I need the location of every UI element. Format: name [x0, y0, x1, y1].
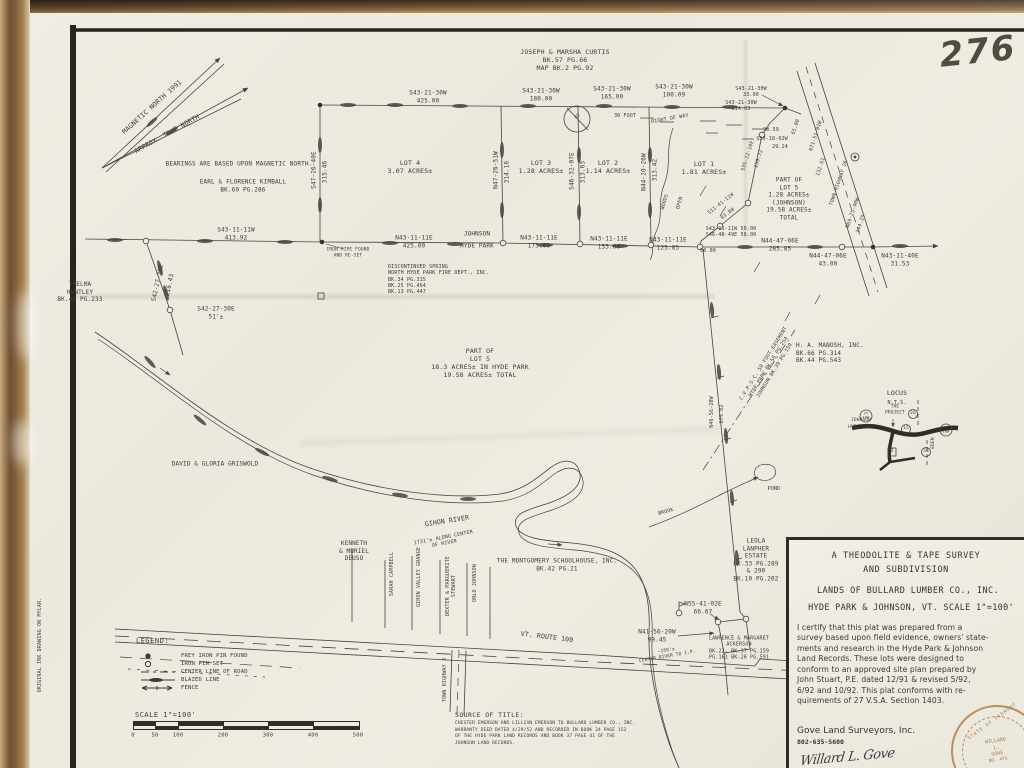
source-of-title-body: CHESTER EMERSON AND LILLIAN EMERSON TO B… [455, 721, 635, 747]
town-line-label-hyde-park: HYDE PARK [460, 242, 494, 250]
bearing-label: N55-41-02E 66.67 [684, 601, 722, 616]
owner-label-grange: GIHON VALLEY GRANGE [416, 547, 422, 607]
bearing-label: S43-21-30W 425.00 [409, 90, 447, 105]
bearing-label: S43-11-11W 50.00 S46-48-49E 50.00 [706, 226, 757, 239]
lot-label-2: LOT 2 1.14 ACRES± [586, 159, 631, 175]
firm-name: Gove Land Surveyors, Inc. [797, 726, 915, 736]
bearing-label: S47-26-40E [310, 151, 318, 189]
owner-label-manosh: H. A. MANOSH, INC. BK.66 PG.314 BK.44 PG… [796, 342, 864, 365]
title-line-2: AND SUBDIVISION [863, 565, 949, 575]
pond-label: POND [768, 486, 781, 492]
locus-route-badge: 26 [910, 411, 916, 417]
town-line-label-johnson: JOHNSON [464, 230, 490, 238]
legend-title: LEGEND: [136, 637, 169, 646]
scale-tick: 0 [131, 733, 134, 740]
owner-label-stewart: DEXTER & MARGUERITE STEWART [445, 556, 458, 616]
bearing-label: S43-21-30W 180.00 [522, 88, 560, 103]
town-highway-3-label: TOWN HIGHWAY 3 [442, 658, 448, 702]
distance-label: 314.16 [503, 161, 511, 184]
bearing-label: S43-21-30W 33.00 [735, 86, 767, 99]
bearing-label: N43-11-11E 125.85 [649, 237, 687, 252]
note-fire-dept-spring: DISCONTINUED SPRING NORTH HYDE PARK FIRE… [388, 264, 489, 295]
bearing-label: N43-11-11E 153.00 [590, 236, 628, 251]
distance-label: 313.63 [579, 161, 587, 184]
bearing-label: N43-11-11E 425.00 [395, 235, 433, 250]
owner-label-deuso: KENNETH & MURIEL DEUSO [339, 540, 369, 563]
locus-route-badge: 3 [891, 449, 894, 455]
bearing-label: S50-18-02W [756, 136, 788, 142]
town-highway-26 [640, 63, 887, 321]
distance-label: 29.24 [772, 144, 788, 150]
owner-label-ackerson: LAWRENCE & MARGARET ACKERSON BK.22, BK.3… [709, 636, 769, 661]
bearing-label: S43-21-30W 214.63 [725, 100, 757, 113]
seal-number: NO. 475 [989, 756, 1009, 764]
lot-label-5-hyde-park: PART OF LOT 5 18.3 ACRES± IN HYDE PARK 1… [431, 347, 529, 380]
owner-label-huntley: THELMA HUNTLEY BK.46 PG.233 [57, 281, 102, 304]
distance-label: 313.42 [651, 159, 659, 182]
brook-and-pond [649, 464, 776, 527]
owner-label-johnson: ORLO JOHNSON [472, 564, 478, 602]
owner-label-kimball: EARL & FLORENCE KIMBALL BK.60 PG.286 [200, 179, 287, 194]
owner-label-lanpher: LEOLA LANPHER ESTATE BK.33 PG.289 & 290 … [733, 538, 778, 583]
bearing-label: N44-47-06E 285.85 [761, 238, 799, 253]
owner-label-schoolhouse: THE MONTGOMERY SCHOOLHOUSE, INC. BK.42 P… [497, 558, 617, 573]
scale-tick: 500 [353, 733, 363, 740]
bearing-label: S43-21-30W 100.09 [655, 84, 693, 99]
firm-phone: 802-635-5600 [797, 738, 844, 746]
locus-eden-label: EDEN [931, 437, 937, 448]
lot-label-5-johnson: PART OF LOT 5 1.28 ACRES± (JOHNSON) 19.5… [766, 177, 811, 222]
lot-label-3: LOT 3 1.28 ACRES± [519, 159, 564, 175]
distance-label: 50.00 [700, 248, 716, 254]
bearing-label: N43-11-40E 31.53 [881, 253, 919, 268]
scale-tick: 400 [308, 733, 318, 740]
owner-label-griswold: DAVID & GLORIA GRISWOLD [172, 460, 259, 468]
scale-tick: 200 [218, 733, 228, 740]
bearing-label: N47-26-51W [492, 151, 500, 189]
bearing-label: N41-56-20W 99.45 [638, 629, 676, 644]
distance-label: 875.02 [719, 405, 725, 424]
survey-plat-photo: 276 ORIGINAL INK DRAWING ON MYLAR. MAGNE… [0, 0, 1024, 768]
locus-route-badge: VT 100 [863, 413, 870, 420]
handwritten-sheet-number: 276 [937, 27, 1018, 77]
owner-label-curtis: JOSEPH & MARSHA CURTIS BK.57 PG.66 MAP B… [520, 48, 609, 72]
bearing-label: S43-11-11W 413.92 [217, 227, 255, 242]
title-line-1: A THEODOLITE & TAPE SURVEY [832, 551, 981, 561]
north-arrows [102, 58, 248, 172]
locus-project-label: THE PROJECT [885, 404, 905, 415]
bearing-label: N43-11-11E 175.00 [520, 235, 558, 250]
locus-route-badge: 15 [903, 426, 909, 432]
lot-label-1: LOT 1 1.81 ACRES± [682, 160, 727, 176]
distance-label: 315.46 [321, 161, 329, 184]
title-line-4: HYDE PARK & JOHNSON, VT. SCALE 1"=100' [808, 603, 1014, 613]
town-highway-3 [450, 650, 466, 715]
scale-tick: 300 [263, 733, 273, 740]
gihon-river [95, 332, 682, 768]
scale-tick: 100 [173, 733, 183, 740]
locus-route-badge: VT 100 [943, 427, 950, 434]
owner-label-campbell: SARAH CAMPBELL [389, 552, 395, 596]
locus-hyde-park-label: HYDE PARK [848, 425, 874, 431]
right-of-way-label: 30 FOOT [614, 113, 636, 119]
legend-item: FENCE [140, 683, 199, 693]
bearing-label: S42-27-30E 51'± [197, 306, 235, 321]
bearing-label: N44-47-06E 43.00 [809, 253, 847, 268]
bearing-label: N44-20-26W [640, 153, 648, 191]
distance-label: 30.59 [763, 127, 779, 133]
source-of-title-heading: SOURCE OF TITLE: [455, 711, 524, 719]
locus-title: LOCUS [887, 389, 907, 397]
bearing-label: N46-56-20W [709, 396, 715, 428]
bearings-note: BEARINGS ARE BASED UPON MAGNETIC NORTH. [166, 160, 313, 168]
lot-label-4: LOT 4 3.07 ACRES± [388, 159, 433, 175]
scale-tick: 50 [152, 733, 159, 740]
surveyor-certification: I certify that this plat was prepared fr… [797, 623, 1024, 707]
scale-title: SCALE 1"=100' [135, 711, 196, 720]
locus-route-badge: 26 [923, 449, 929, 455]
margin-note: ORIGINAL INK DRAWING ON MYLAR. [37, 598, 43, 693]
fence-icon [140, 683, 176, 693]
bearing-label: S46-32-07E [568, 152, 576, 190]
scale-bar [133, 721, 360, 730]
legend-item-label: FENCE [181, 685, 199, 691]
title-line-3: LANDS OF BULLARD LUMBER CO., INC. [817, 586, 999, 596]
bearing-label: S43-21-30W 165.00 [593, 86, 631, 101]
iron-pipe-note: IRON PIPE FOUND AND RE-SET [327, 247, 370, 258]
